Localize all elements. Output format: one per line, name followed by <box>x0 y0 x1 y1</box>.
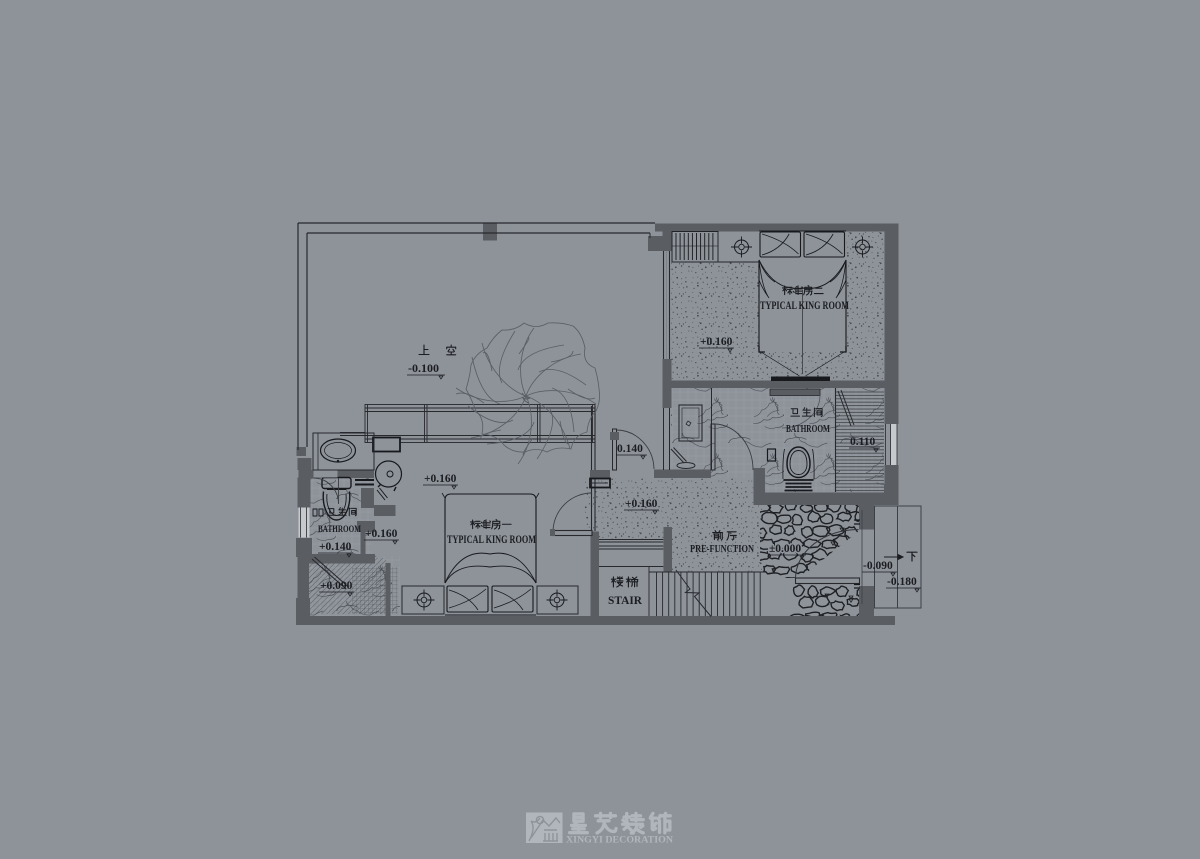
svg-text:+0.160: +0.160 <box>424 473 457 485</box>
svg-text:+0.160: +0.160 <box>700 336 733 348</box>
svg-text:-0.090: -0.090 <box>863 560 893 572</box>
svg-text:PRE-FUNCTION: PRE-FUNCTION <box>690 544 754 555</box>
svg-text:0.140: 0.140 <box>617 443 643 455</box>
svg-text:+0.140: +0.140 <box>319 541 352 553</box>
svg-text:TYPICAL KING ROOM: TYPICAL KING ROOM <box>760 300 849 312</box>
svg-text:+0.160: +0.160 <box>625 498 658 510</box>
svg-text:XINGYI DECORATION: XINGYI DECORATION <box>566 836 673 846</box>
svg-text:0.110: 0.110 <box>850 436 875 448</box>
svg-text:-0.180: -0.180 <box>887 576 917 588</box>
svg-text:TYPICAL KING ROOM: TYPICAL KING ROOM <box>447 534 536 546</box>
svg-text:BATHROOM: BATHROOM <box>318 525 361 535</box>
svg-text:STAIR: STAIR <box>608 595 643 607</box>
svg-text:+0.090: +0.090 <box>320 580 353 592</box>
svg-text:±0.000: ±0.000 <box>769 543 801 555</box>
svg-text:BATHROOM: BATHROOM <box>786 424 830 435</box>
svg-text:+0.160: +0.160 <box>365 528 398 540</box>
svg-text:-0.100: -0.100 <box>408 361 439 375</box>
